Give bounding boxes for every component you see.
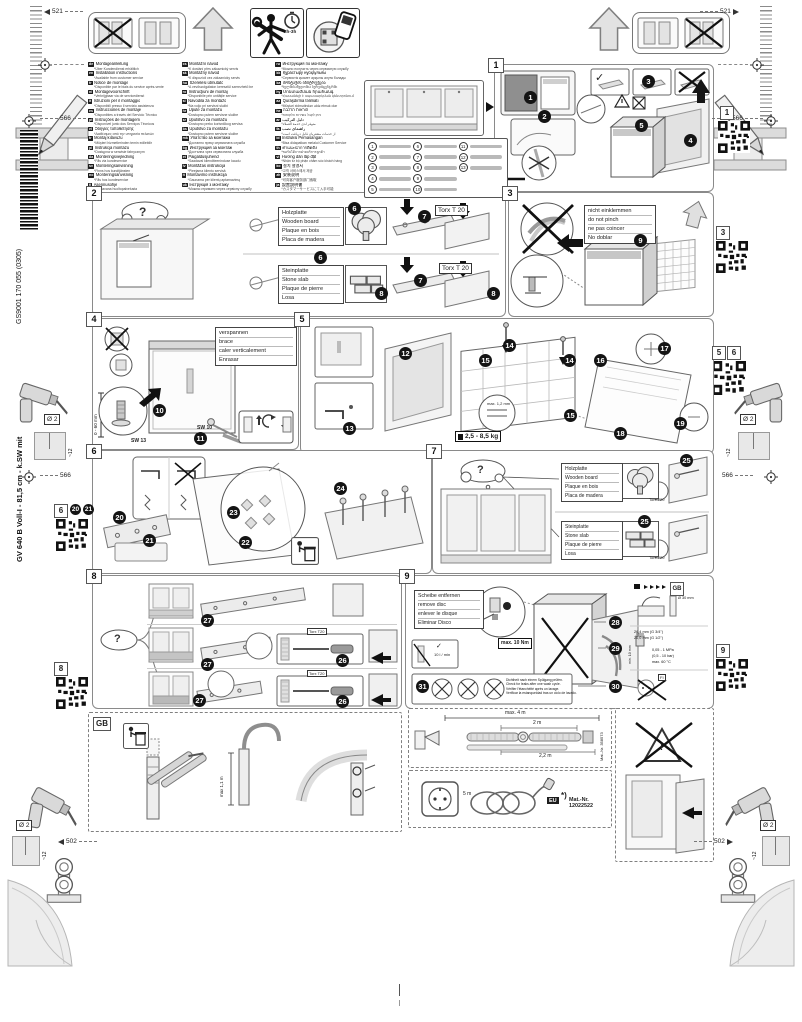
language-note: *Na voljo pri servisni službi xyxy=(182,104,269,108)
panel-warning-illustration xyxy=(89,13,185,53)
part-glyph-icon xyxy=(470,155,502,159)
language-note: *Dostupno putem servisne službe xyxy=(182,113,269,117)
step-panel-7: 7 ? HolzplatteWooden boardPlaque en bois… xyxy=(432,450,714,574)
language-note: *Διαθέσιμες από την υπηρεσία πελατών xyxy=(88,132,175,136)
dispose-icon xyxy=(123,723,149,749)
language-code-tag: nl xyxy=(88,90,93,94)
hose-2m-label: 2 m xyxy=(533,720,541,726)
parts-list-item: 2 xyxy=(368,152,413,163)
part-number: 4 xyxy=(368,174,377,183)
standpipe-dia-spec: Ø 30 mm xyxy=(678,596,694,601)
arrow-up-icon xyxy=(192,6,234,52)
part-glyph-icon xyxy=(379,188,411,192)
drill-depth-label: ~12 xyxy=(752,838,758,860)
gb-chip: GB xyxy=(93,717,111,731)
language-title: Инструкция по монтажу xyxy=(282,62,327,67)
language-entry: vi Hướng dẫn lắp đặt *Nhận từ bộ phận ch… xyxy=(275,155,362,164)
connection-34-spec: 26,4 mm (G 3/4") xyxy=(634,630,663,635)
parts-list-item: 5 xyxy=(368,184,413,195)
wrench-size-label: SW 13 xyxy=(131,438,146,444)
label-line: do not pinch xyxy=(588,216,652,225)
step-badge-15: 15 xyxy=(479,354,492,367)
step-badge-5: 5 xyxy=(635,119,648,132)
language-note: *Disponibile prin unităţile service xyxy=(182,94,269,98)
language-note: *Достъпна чрез сервизната служба xyxy=(182,150,269,154)
drill-diameter-label: Ø 2 xyxy=(44,414,60,425)
part-number: 11 xyxy=(459,142,468,151)
label-line: Losa xyxy=(282,294,340,302)
label-line: Holzplatte xyxy=(282,209,340,218)
step-badge-27: 27 xyxy=(193,694,206,707)
language-code-tag: pt xyxy=(88,118,93,122)
language-entry: sv Monteringsanvisning *Finns hos kundtj… xyxy=(88,164,175,173)
part-glyph-icon xyxy=(379,145,411,149)
language-note: *Հասանելի է սպասարկման կենտրոնում xyxy=(275,94,362,98)
language-note: *Fås via kundeservice xyxy=(88,159,175,163)
part-glyph-icon xyxy=(470,145,502,149)
language-code-tag: sv xyxy=(88,164,94,168)
language-entry: nl Montagevoorschrift *Verkrijgbaar via … xyxy=(88,90,175,99)
qr-code xyxy=(716,241,748,273)
step-badge-28: 28 xyxy=(609,616,622,629)
power-cord-part-number: Mat.-Nr. 12022522 xyxy=(569,797,611,809)
label-line: Eliminar Disco xyxy=(418,619,480,627)
part-glyph-icon xyxy=(424,155,456,159)
part-number: 2 xyxy=(368,153,377,162)
parts-list-item: 1 xyxy=(368,141,413,152)
power-cord-panel: 5 m EU *) Mat.-Nr. 12022522 xyxy=(408,770,612,828)
language-code-tag: ar xyxy=(275,118,280,122)
niche-front-view xyxy=(364,80,484,136)
language-note: *Müşteri hizmetlerinden temin edilebilir xyxy=(88,141,175,145)
language-entry: zh 安装说明 *可向客户服务部门索取 xyxy=(275,173,362,182)
language-code-tag: bs xyxy=(182,127,188,131)
language-code-tag: tr xyxy=(88,136,93,140)
product-code-vertical: GV 640 B Voll-I - 81,5 cm - k.SW mit xyxy=(15,330,24,562)
torx-label: Torx T 20 xyxy=(439,263,472,274)
leader-dashes xyxy=(718,64,748,65)
parts-list-item: 9 xyxy=(413,173,458,184)
pressure-spec: 0,05 - 1 MPa xyxy=(652,648,674,653)
dimension-566-left-mid: 566 xyxy=(40,472,71,479)
language-code-tag: hr xyxy=(182,109,188,113)
step-badge-22: 22 xyxy=(239,536,252,549)
installer-time-pictogram: 2h-3h xyxy=(250,8,304,58)
qr-code xyxy=(712,361,746,395)
dimension-521-right: 521 xyxy=(700,8,739,15)
language-entry: el Οδηγίες τοποθέτησης *Διαθέσιμες από τ… xyxy=(88,127,175,136)
language-code-tag: uk xyxy=(182,183,188,187)
drill-crosshair-icon xyxy=(764,114,778,128)
panel-number: 4 xyxy=(86,312,102,327)
gb-fold-ref-chip: GB xyxy=(670,582,684,596)
language-code-tag: el xyxy=(88,127,93,131)
step-badge-30: 30 xyxy=(609,680,622,693)
label-line: Stone slab xyxy=(565,532,619,541)
qr-step-chip-9: 9 xyxy=(716,644,730,658)
page-curl xyxy=(728,876,798,968)
step-panel-9: 9 Scheibe entfernenremove discenlever le… xyxy=(405,575,714,709)
language-note: *Достапно преку сервисната служба xyxy=(182,141,269,145)
torx-small-label: Torx T20 xyxy=(649,497,665,502)
dim-arrow-icon xyxy=(44,9,50,15)
part-number: 5 xyxy=(368,185,377,194)
barcode xyxy=(20,130,38,230)
footnote-star: *) xyxy=(561,791,567,800)
part-glyph-icon xyxy=(424,166,456,170)
language-note: *Gaunama per klientų aptarnavimą xyxy=(182,178,269,182)
language-code-tag: ro xyxy=(182,90,188,94)
language-code-tag: th xyxy=(275,146,280,150)
language-note: *Dostupno preko korisničkog servisa xyxy=(182,122,269,126)
language-code-tag: cs xyxy=(182,62,188,66)
dim-dash xyxy=(700,11,718,12)
language-entry: sl Navodila za montažo *Na voljo pri ser… xyxy=(182,99,269,108)
drill-template xyxy=(34,432,66,460)
label-line: Steinplatte xyxy=(282,267,340,276)
language-title: Montážní návod xyxy=(189,62,218,67)
step-badge-17: 17 xyxy=(658,342,671,355)
step-badge-29: 29 xyxy=(609,642,622,655)
parts-list-item: 12 xyxy=(459,152,504,163)
language-note: *K dispozícii cez zákaznícky servis xyxy=(182,76,269,80)
step-badge-8: 8 xyxy=(375,287,388,300)
language-note: *Nhận từ bộ phận chăm sóc khách hàng xyxy=(275,159,362,163)
drill-depth-label: ~12 xyxy=(726,433,732,457)
tree-icon xyxy=(622,464,658,498)
language-title: Οδηγίες τοποθέτησης xyxy=(95,127,134,132)
qr-code xyxy=(56,677,88,709)
qr-step-chip-8: 8 xyxy=(54,662,68,676)
drill-diameter-label: Ø 2 xyxy=(760,820,776,831)
gb-drain-panel: GB max 1,1 m xyxy=(88,712,402,832)
language-code-tag: lt xyxy=(182,173,186,177)
panel-number: 2 xyxy=(86,186,102,201)
part-glyph-icon xyxy=(379,166,411,170)
language-entry: bg Инструкция за монтаж *Достъпна чрез с… xyxy=(182,146,269,155)
language-note: *Можно получить через сервисную службу xyxy=(275,67,362,71)
dim-arrow-icon xyxy=(733,9,739,15)
eu-region-chip: EU xyxy=(547,797,559,804)
qr-code xyxy=(716,659,748,691)
parts-list-item: 6 xyxy=(413,141,458,152)
step-badge-20: 20 xyxy=(113,511,126,524)
language-note: *ניתן לקבל בשירות הלקוחות xyxy=(275,113,362,117)
label-line: Placa de madera xyxy=(282,236,340,244)
language-entry: th คำแนะนำการติดตั้ง *ขอรับได้จากฝ่ายบริ… xyxy=(275,146,362,155)
part-glyph-icon xyxy=(424,188,456,192)
language-entry: sk Montážny návod *K dispozícii cez záka… xyxy=(182,71,269,80)
label-line: Plaque en bois xyxy=(282,227,340,236)
panel-number: 7 xyxy=(426,444,442,459)
installation-sheet-page: 521 521 2h-3h 566 566 xyxy=(0,0,802,1022)
drill-depth-label: ~12 xyxy=(68,433,74,457)
torx-small-label: Torx T20 xyxy=(649,555,665,560)
language-code-tag: vi xyxy=(275,155,280,159)
flow-rate-label: 10 l / min xyxy=(434,652,450,657)
dimension-566-left: 566 xyxy=(40,115,91,122)
hose-extension-illustration xyxy=(409,709,611,767)
connection-12-spec: 20,0 mm (G 1/2") xyxy=(634,636,663,641)
leak-check-text: Dichtheit nach einem Spülgang prüfen.Che… xyxy=(506,678,577,696)
language-title: Monteringsanvisning xyxy=(96,164,134,169)
dimension-502-left: 502 xyxy=(58,838,97,845)
language-note: *Verkrijgbaar via de servicedienst xyxy=(88,94,175,98)
step-badge-25: 25 xyxy=(680,454,693,467)
fold-tick xyxy=(399,1000,400,1006)
language-title: Montāžas instrukcija xyxy=(188,164,225,169)
language-entry: az Quraşdırma təlimatı *Müştəri xidmətin… xyxy=(275,99,362,108)
label-line: Wooden board xyxy=(282,218,340,227)
weight-icon xyxy=(458,434,463,440)
parts-list-item: 7 xyxy=(413,152,458,163)
dimension-502-right: 502 xyxy=(694,838,733,845)
part-glyph-icon xyxy=(379,155,411,159)
label-line: Plaque de pierre xyxy=(282,285,340,294)
language-entry: fa راهنمای نصب *از خدمات مشتریان قابل در… xyxy=(275,127,362,136)
language-note: *Über Kundendienst erhältlich xyxy=(88,67,175,71)
label-line: Plaque de pierre xyxy=(565,541,619,550)
language-code-tag: id xyxy=(275,136,280,140)
label-line: verspannen xyxy=(219,329,293,338)
rcd-fi-label: FI xyxy=(658,674,666,681)
language-entry: no Monteringsanvisning *Fås hos kundeser… xyxy=(88,173,175,182)
temperature-spec: max. 60 °C xyxy=(652,660,671,665)
dimension-566-right-mid: 566 xyxy=(722,472,753,479)
label-line: Stone slab xyxy=(282,276,340,285)
panel-handling-warning-box-left xyxy=(88,12,186,54)
label-line: Losa xyxy=(565,550,619,558)
arrow-right-icon xyxy=(486,102,494,112)
check-icon: ✓ xyxy=(595,71,604,84)
language-entry: et Paigaldusjuhend *Saadaval klienditeen… xyxy=(182,155,269,164)
gap-dimension-label: max. 1,2 mm xyxy=(487,401,510,406)
parts-list-item: 13 xyxy=(459,163,504,174)
drill-template xyxy=(762,836,790,866)
dispose-packaging-icon xyxy=(291,537,319,565)
language-code-tag: it xyxy=(88,99,92,103)
language-entry: hr Upute za montažu *Dostupno putem serv… xyxy=(182,108,269,117)
dim-dash xyxy=(65,11,83,12)
language-list: de Montageanleitung *Über Kundendienst e… xyxy=(88,62,362,192)
language-code-tag: sr xyxy=(182,118,187,122)
leader-dashes xyxy=(54,64,84,65)
label-line: Steinplatte xyxy=(565,523,619,532)
language-note: *カスタマーサービスにて入手可能 xyxy=(275,187,362,191)
language-note: *از خدمات مشتریان قابل دریافت است xyxy=(275,132,362,136)
step-badge-1: 1 xyxy=(524,91,537,104)
parts-list-item: 3 xyxy=(368,163,413,174)
label-line: Holzplatte xyxy=(565,465,619,474)
question-mark: ? xyxy=(139,205,146,219)
language-column-1: de Montageanleitung *Über Kundendienst e… xyxy=(88,62,175,192)
language-note: *Disponível junto dos Serviços Técnicos xyxy=(88,122,175,126)
language-entry: lv Montāžas instrukcija *Pieejama klient… xyxy=(182,164,269,173)
label-line: caler verticalement xyxy=(219,347,293,356)
label-line: Enrasar xyxy=(219,356,293,364)
bricks-icon xyxy=(622,522,658,556)
step-badge-24: 24 xyxy=(334,482,347,495)
panel-number: 6 xyxy=(86,444,102,459)
drill-depth-label: ~12 xyxy=(42,838,48,860)
label-line: Plaque en bois xyxy=(565,483,619,492)
language-note: *Fås hos kundeservice xyxy=(88,178,175,182)
warning-exclamation: ! xyxy=(660,742,663,752)
language-entry: lt Montavimo instrukcija *Gaunama per kl… xyxy=(182,173,269,182)
step-panel-4: 4 verspannenbracecaler verticalementEnra… xyxy=(92,318,299,450)
step-badge-20: 20 xyxy=(70,504,81,515)
fittings-parts-list: 1 2 3 4 5 6 7 8 9 10 11 12 13 xyxy=(364,138,508,198)
language-note: *Available from customer service xyxy=(88,76,175,80)
language-code-tag: az xyxy=(275,99,281,103)
door-weight-label: 2,5 - 8,5 kg xyxy=(455,431,501,442)
language-entry: da Monteringsvejledning *Fås via kundese… xyxy=(88,155,175,164)
label-line: Scheibe entfernen xyxy=(418,592,480,601)
drill-crosshair-icon xyxy=(38,58,52,72)
wood-label-box: HolzplatteWooden boardPlaque en boisPlac… xyxy=(278,207,344,246)
parts-list-item: 8 xyxy=(413,163,458,174)
part-number: 1 xyxy=(368,142,377,151)
parts-list-item: 4 xyxy=(368,173,413,184)
print-code-vertical: GS9001 170 055 (0305) xyxy=(16,236,23,324)
language-note: *Disponible par le biais du service aprè… xyxy=(88,85,175,89)
panel-handling-warning-box-right xyxy=(632,12,730,54)
label-line: brace xyxy=(219,338,293,347)
foot-range-label: 0 - 60 mm xyxy=(93,395,98,435)
drill-crosshair-icon xyxy=(22,470,36,484)
language-entry: it Istruzioni per il montaggio *Disponib… xyxy=(88,99,175,108)
parts-list-item: 11 xyxy=(459,141,504,152)
drill-crosshair-icon xyxy=(750,58,764,72)
check-icon: ✓ xyxy=(436,642,442,650)
language-code-tag: pl xyxy=(88,146,93,150)
torx-small-label: Torx T20 xyxy=(307,670,327,677)
torque-label: max. 10 Nm xyxy=(498,638,532,649)
panel-number: 8 xyxy=(86,569,102,584)
drain-hose-extension-panel: max. 4 m 2 m 2,2 m Mat.-Nr. 358573 xyxy=(408,708,612,768)
drill-diameter-label: Ø 2 xyxy=(740,414,756,425)
panel-number: 9 xyxy=(399,569,415,584)
language-entry: sr Uputstvo za montažu *Dostupno preko k… xyxy=(182,118,269,127)
language-note: *Bisa didapatkan melalui Customer Servic… xyxy=(275,141,362,145)
step8-illustration xyxy=(93,576,401,708)
step-badge-3: 3 xyxy=(642,75,655,88)
drill-template xyxy=(738,432,770,460)
language-entry: pt Instruções de montagem *Disponível ju… xyxy=(88,118,175,127)
language-code-tag: fa xyxy=(275,127,280,131)
part-number: 12 xyxy=(459,153,468,162)
language-entry: ja 設置説明書 *カスタマーサービスにて入手可能 xyxy=(275,183,362,192)
qr-scan-pictogram xyxy=(306,8,360,58)
stone-label-box: SteinplatteStone slabPlaque de pierreLos… xyxy=(561,521,623,560)
label-line: Placa de madera xyxy=(565,492,619,500)
language-code-tag: lv xyxy=(182,164,187,168)
step-badge-25: 25 xyxy=(638,515,651,528)
language-note: *Saadaval klienditeeninduse kaudu xyxy=(182,159,269,163)
label-line: nicht einklemmen xyxy=(588,207,652,216)
language-code-tag: ru xyxy=(275,62,281,66)
step-badge-6: 6 xyxy=(348,202,361,215)
language-note: *Disponibles a través del Servicio Técni… xyxy=(88,113,175,117)
language-column-3: ru Инструкция по монтажу *Можно получить… xyxy=(275,62,362,192)
socket-icon xyxy=(421,781,459,817)
language-entry: hy Մոնտաժման հրահանգ *Հասանելի է սպասարկ… xyxy=(275,90,362,99)
step-badge-18: 18 xyxy=(614,427,627,440)
part-glyph-icon xyxy=(379,177,411,181)
step-badge-12: 12 xyxy=(399,347,412,360)
qr-step-chip-3: 3 xyxy=(716,226,730,240)
language-title: راهنمای نصب xyxy=(282,127,305,132)
language-entry: ro Instrucţiuni de montaj *Disponibile p… xyxy=(182,90,269,99)
part-number: 13 xyxy=(459,163,468,172)
label-line: remove disc xyxy=(418,601,480,610)
step-badge-26: 26 xyxy=(336,654,349,667)
language-note: *Сервистік қызмет арқылы алуға болады xyxy=(275,76,362,80)
language-note: *Müştəri xidmətindən əldə etmək olar xyxy=(275,104,362,108)
language-entry: pl Instrukcja montażu *Dostępna w serwis… xyxy=(88,146,175,155)
step-panel-3: 3 nicht einklemmendo not pinchne pas coi… xyxy=(508,192,714,317)
step-badge-11: 11 xyxy=(194,432,207,445)
label-line: ne pas coincer xyxy=(588,225,652,234)
language-note: *ხელმისაწვდომია სერვისცენტრში xyxy=(275,85,362,89)
step-badge-26: 26 xyxy=(336,695,349,708)
qr-step-chip-6: 6 xyxy=(54,504,68,518)
step-badge-23: 23 xyxy=(227,506,240,519)
question-mark: ? xyxy=(114,633,121,645)
step-badge-21: 21 xyxy=(83,504,94,515)
language-note: *可向客户服务部门索取 xyxy=(275,178,362,182)
part-number: 10 xyxy=(413,185,422,194)
step-badge-4: 4 xyxy=(684,134,697,147)
wood-label-box: HolzplatteWooden boardPlaque en boisPlac… xyxy=(561,463,623,502)
wrench-size-label: SW 10 xyxy=(197,425,212,431)
language-entry: de Montageanleitung *Über Kundendienst e… xyxy=(88,62,175,71)
leak-check-line: Verificar la estanqueidad tras un ciclo … xyxy=(506,691,577,695)
drill-template xyxy=(12,836,40,866)
language-code-tag: ja xyxy=(275,183,280,187)
cord-length-label: 5 m xyxy=(463,791,471,797)
language-entry: id Instruksi Pemasangan *Bisa didapatkan… xyxy=(275,136,362,145)
part-number: 3 xyxy=(368,163,377,172)
torx-label: Torx T 20 xyxy=(435,205,468,216)
language-entry: en Installation instructions *Available … xyxy=(88,71,175,80)
language-title: 설치 설명서 xyxy=(283,164,303,169)
language-entry: fr Notice de montage *Disponible par le … xyxy=(88,81,175,90)
step-badge-15: 15 xyxy=(564,409,577,422)
step6-illustration xyxy=(93,451,431,573)
hose-max-length-label: max. 4 m xyxy=(505,710,526,716)
panel-number: 5 xyxy=(294,312,310,327)
language-code-tag: de xyxy=(88,62,94,66)
language-entry: bs Uputstvo za montažu *Dostupno putem s… xyxy=(182,127,269,136)
torx-small-label: Torx T20 xyxy=(307,628,327,635)
part-number: 8 xyxy=(413,163,422,172)
wood-icon-box xyxy=(621,463,659,499)
language-note: *Pieejama klientu servisā xyxy=(182,169,269,173)
part-number: 9 xyxy=(413,174,422,183)
part-glyph-icon xyxy=(424,177,456,181)
brace-label-box: verspannenbracecaler verticalementEnrasa… xyxy=(215,327,297,366)
arrow-up-icon xyxy=(588,6,630,52)
part-glyph-icon xyxy=(470,166,502,170)
language-entry: cs Montážní návod *K dostání přes zákazn… xyxy=(182,62,269,71)
qr-step-chip-5: 5 xyxy=(712,346,726,360)
step-badge-14: 14 xyxy=(503,339,516,352)
installer-icon xyxy=(251,9,303,57)
language-entry: es Instrucciones de montaje *Disponibles… xyxy=(88,108,175,117)
step-panel-5: 5 max. 1,2 mm 2,5 - 8,5 kg 12 13 14 14 1… xyxy=(300,318,714,454)
language-title: Montageanleitung xyxy=(96,62,129,67)
